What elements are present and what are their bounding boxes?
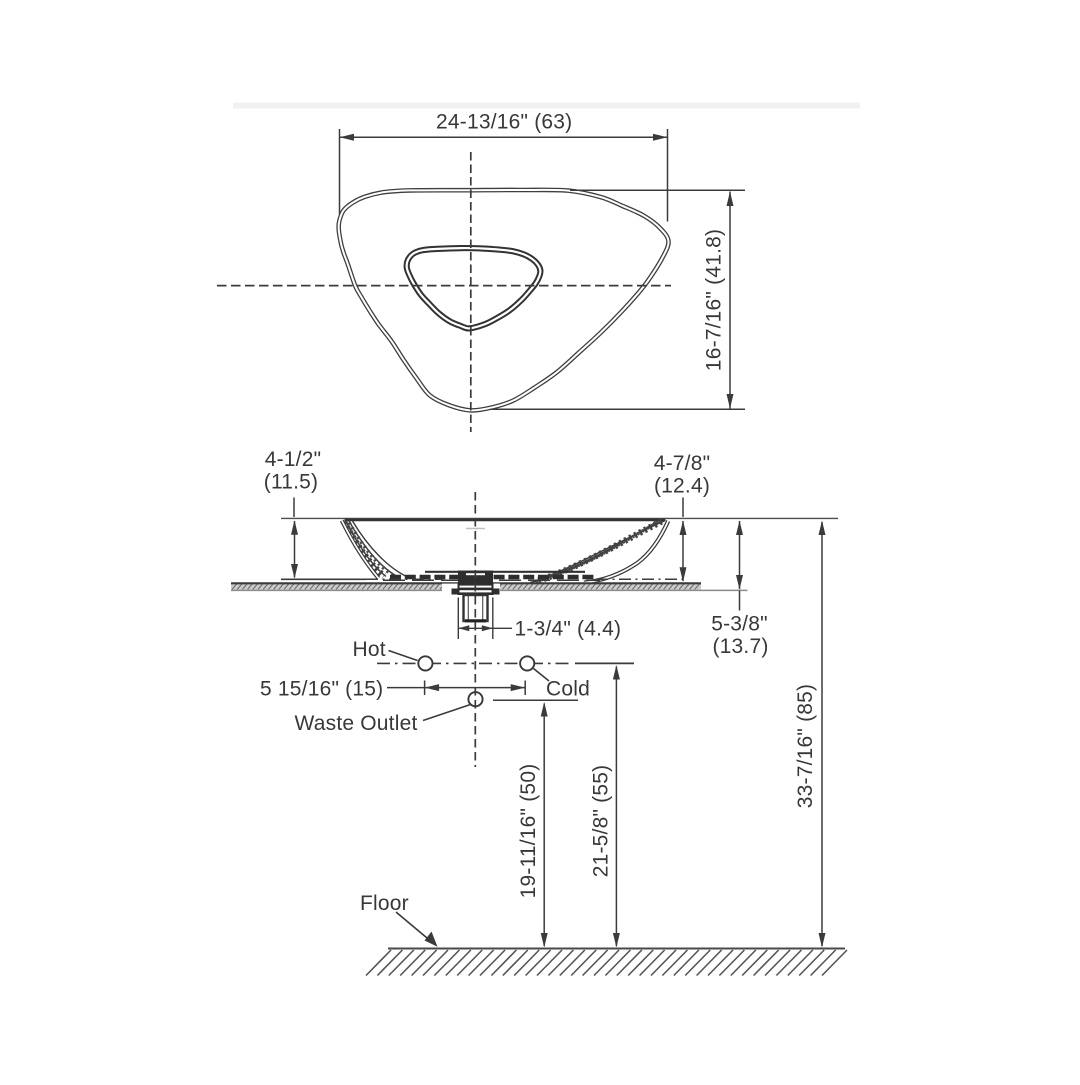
svg-text:24-13/16" (63): 24-13/16" (63) [436,111,572,134]
svg-text:(12.4): (12.4) [654,475,710,498]
svg-text:16-7/16" (41.8): 16-7/16" (41.8) [703,229,726,371]
svg-text:33-7/16" (85): 33-7/16" (85) [794,684,817,808]
svg-text:Waste Outlet: Waste Outlet [295,712,418,735]
svg-text:5-3/8": 5-3/8" [711,613,768,636]
svg-text:4-1/2": 4-1/2" [265,448,322,471]
svg-text:(11.5): (11.5) [264,471,319,494]
svg-text:Hot: Hot [353,638,386,661]
svg-text:4-7/8": 4-7/8" [654,452,711,475]
svg-text:1-3/4" (4.4): 1-3/4" (4.4) [515,618,622,641]
svg-text:Cold: Cold [546,678,590,701]
svg-text:21-5/8" (55): 21-5/8" (55) [590,765,613,878]
svg-text:(13.7): (13.7) [712,635,768,658]
svg-text:19-11/16" (50): 19-11/16" (50) [517,764,540,899]
svg-text:Floor: Floor [360,892,409,915]
svg-text:5 15/16" (15): 5 15/16" (15) [260,678,383,701]
